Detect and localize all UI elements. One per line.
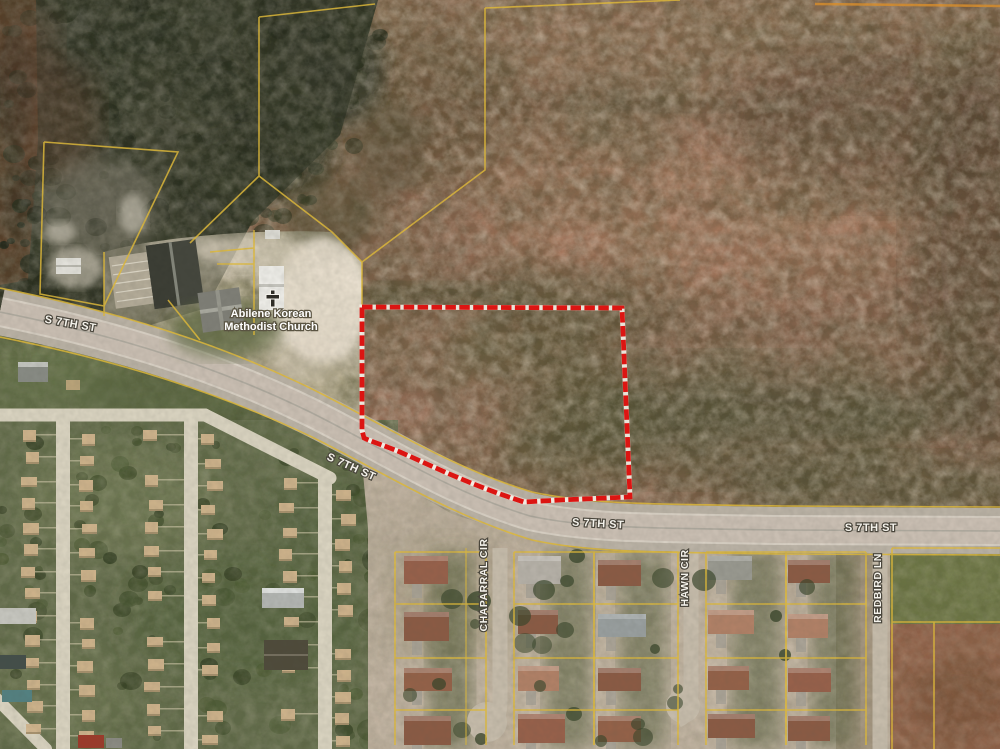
svg-text:REDBIRD LN: REDBIRD LN — [872, 553, 884, 623]
svg-text:CHAPARRAL CIR: CHAPARRAL CIR — [478, 538, 490, 631]
svg-text:Abilene Korean: Abilene Korean — [231, 308, 312, 320]
svg-text:Methodist Church: Methodist Church — [224, 321, 318, 333]
svg-text:S 7TH ST: S 7TH ST — [845, 522, 897, 534]
svg-text:HAWN CIR: HAWN CIR — [679, 549, 691, 606]
